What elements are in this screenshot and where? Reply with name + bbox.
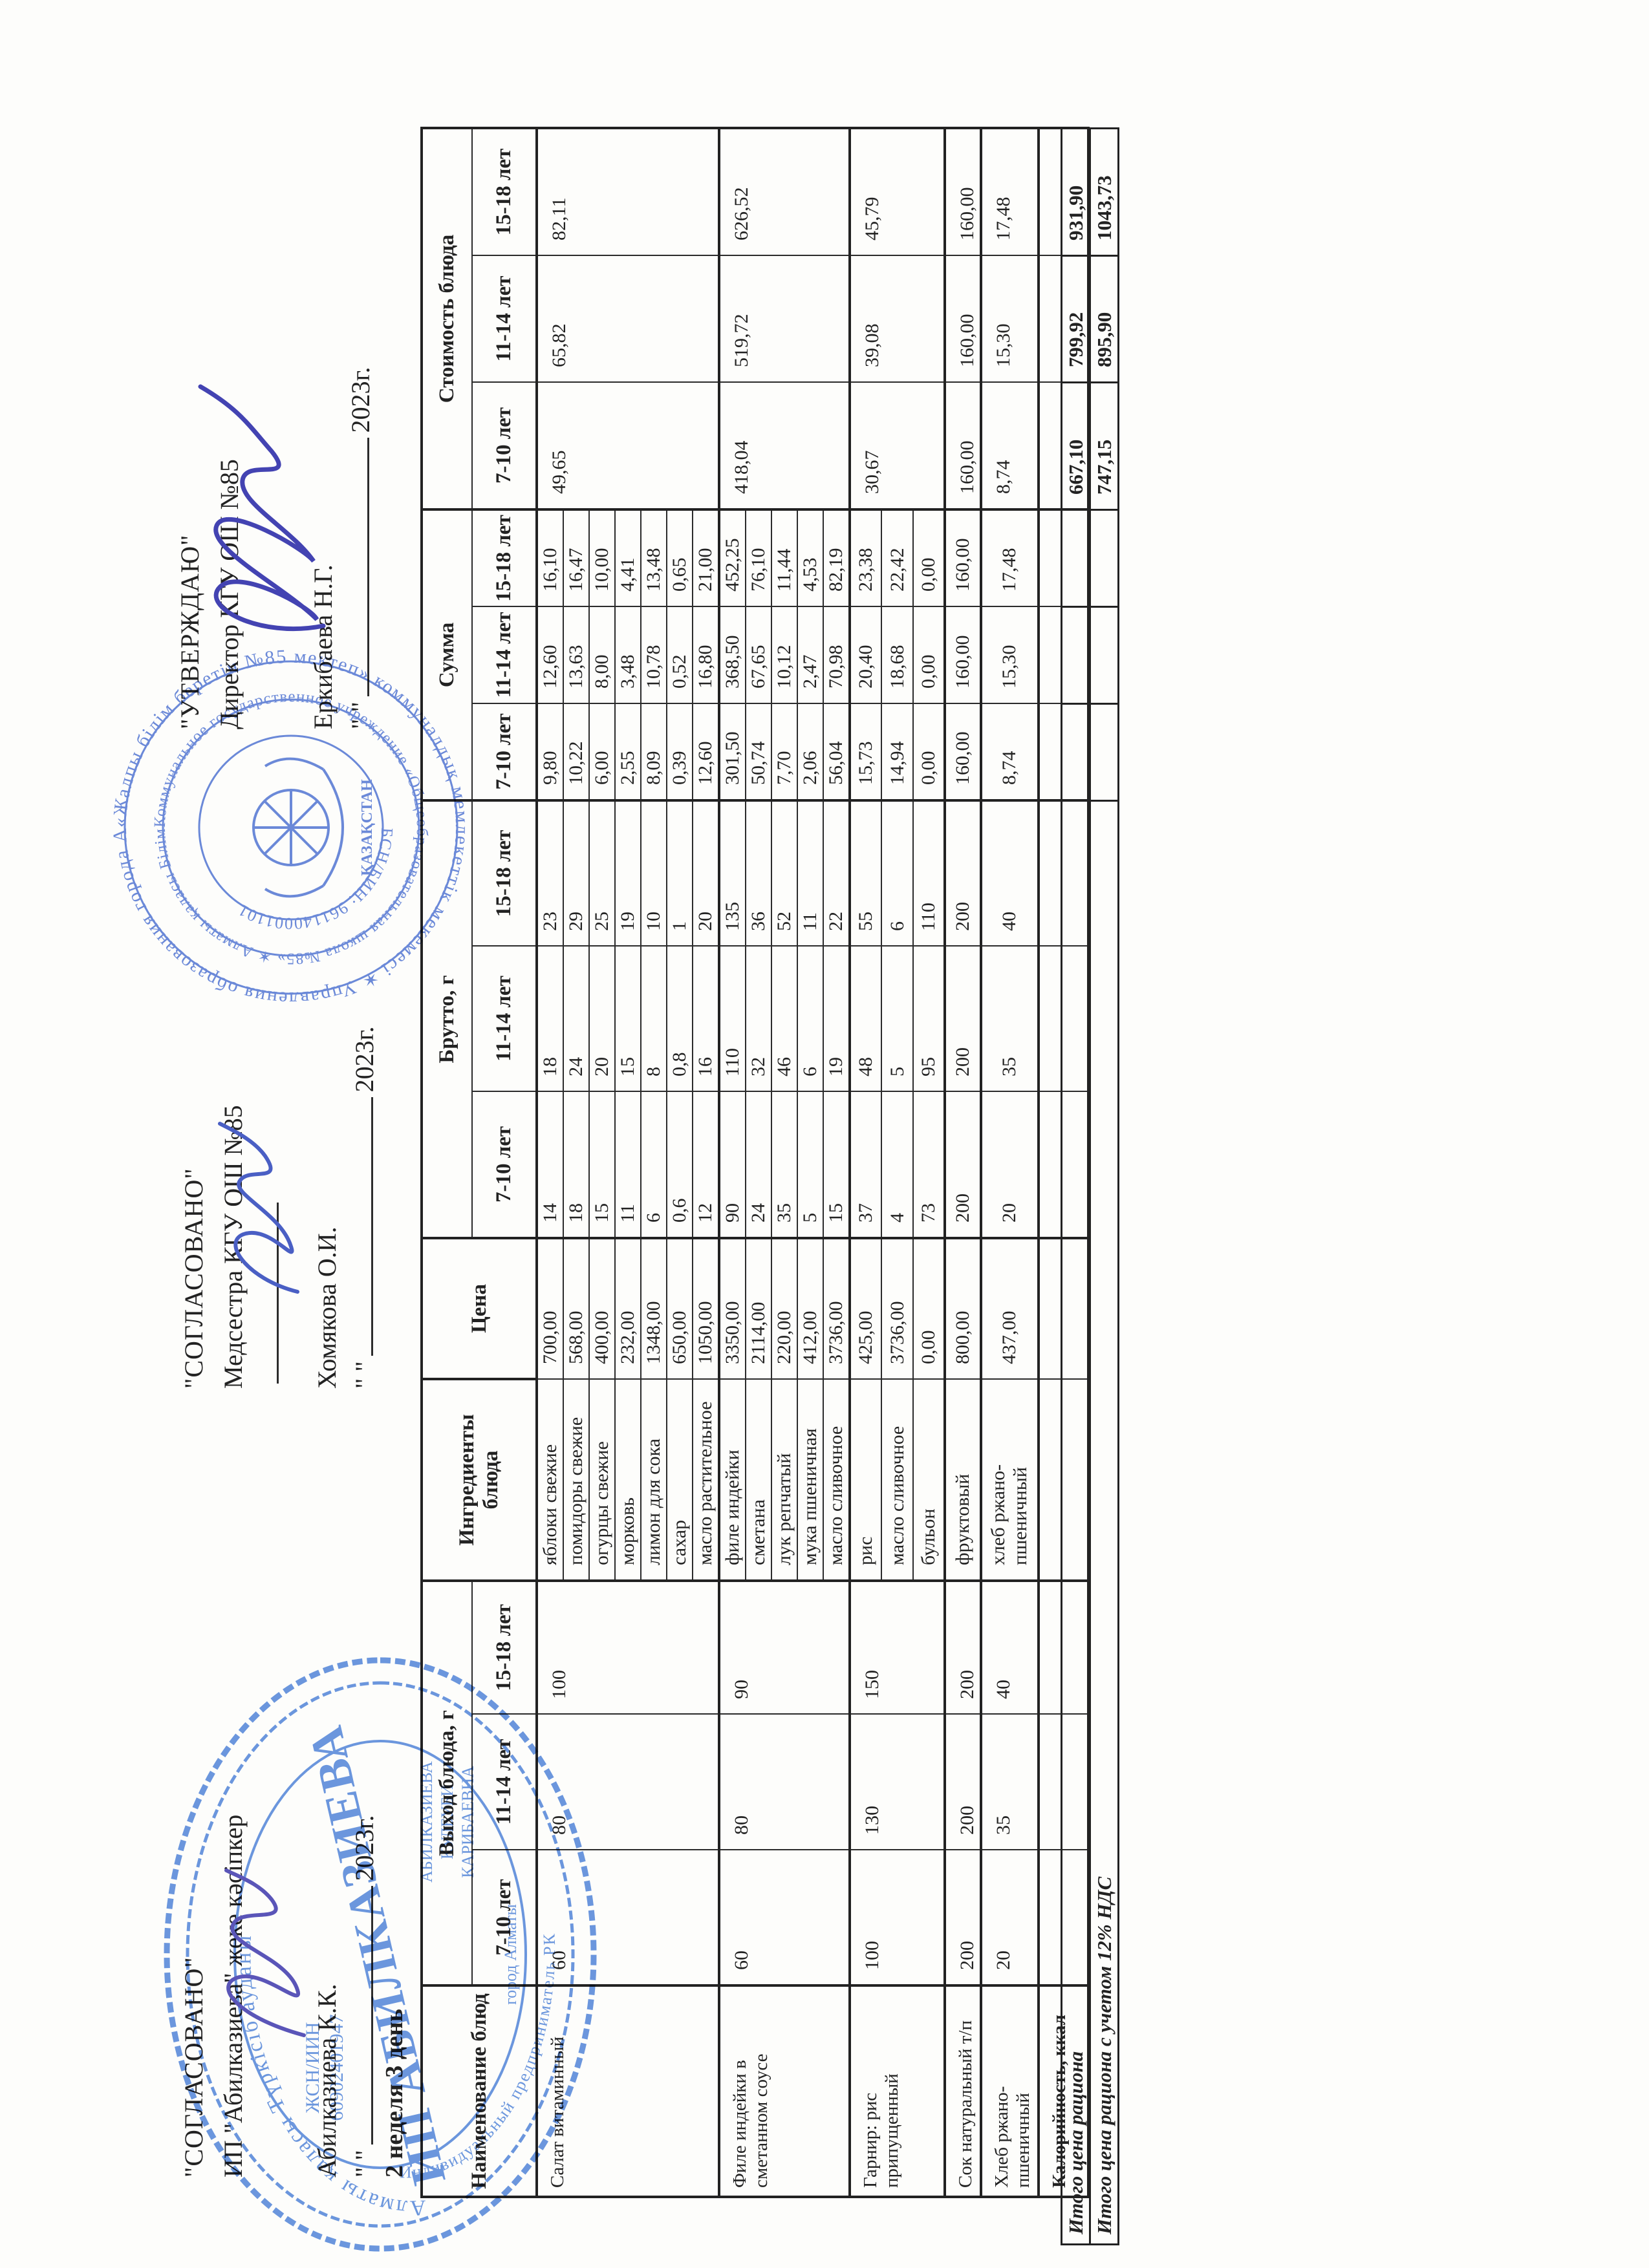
sum-cell: 4,41 xyxy=(615,509,641,606)
dish-name-cell: Сок натуральный т/п xyxy=(945,1985,981,2197)
brutto-cell: 110 xyxy=(913,800,945,946)
brutto-cell: 15 xyxy=(823,1091,850,1238)
price-cell: 2114,00 xyxy=(746,1238,771,1379)
brutto-cell: 36 xyxy=(746,800,771,946)
brutto-cell: 4 xyxy=(881,1091,913,1238)
total-value-cell: 1043,73 xyxy=(1090,129,1119,256)
med-date-line: " "2023г. xyxy=(350,1026,380,1389)
brutto-cell: 12 xyxy=(693,1091,719,1238)
date-underline xyxy=(351,1097,373,1356)
brutto-cell: 200 xyxy=(945,946,981,1091)
oval-fio1: АБИЛКАЗИЕВА xyxy=(417,1761,436,1883)
brutto-cell: 29 xyxy=(563,800,589,946)
yield-cell: 200 xyxy=(945,1714,981,1850)
sum-cell: 10,12 xyxy=(771,606,797,703)
sum-cell: 0,65 xyxy=(667,509,693,606)
sum-cell: 9,80 xyxy=(537,703,563,800)
brutto-cell: 37 xyxy=(850,1091,881,1238)
sum-cell: 2,47 xyxy=(797,606,823,703)
price-cell: 400,00 xyxy=(589,1238,615,1379)
brutto-cell: 5 xyxy=(797,1091,823,1238)
oval-fio3: КАРИБАЕВНА xyxy=(458,1766,477,1878)
price-cell: 3736,00 xyxy=(881,1238,913,1379)
oval-city: город Алматы xyxy=(501,1904,520,2005)
brutto-cell: 22 xyxy=(823,800,850,946)
total-label-cell: Итого цена рациона xyxy=(1062,801,1090,2245)
brutto-cell: 35 xyxy=(981,946,1039,1091)
brutto-cell: 19 xyxy=(615,800,641,946)
price-cell: 412,00 xyxy=(797,1238,823,1379)
age-col-label: 7-10 лет xyxy=(472,1091,537,1238)
yield-cell: 35 xyxy=(981,1714,1039,1850)
total-value-cell: 667,10 xyxy=(1062,383,1090,510)
date-quotes: " " xyxy=(350,1361,379,1389)
sum-cell: 8,00 xyxy=(589,606,615,703)
price-cell: 220,00 xyxy=(771,1238,797,1379)
brutto-cell: 25 xyxy=(589,800,615,946)
ingredient-cell: яблоки свежие xyxy=(537,1379,563,1581)
sum-cell: 160,00 xyxy=(945,509,981,606)
brutto-cell: 20 xyxy=(693,800,719,946)
sum-cell: 16,10 xyxy=(537,509,563,606)
price-cell: 650,00 xyxy=(667,1238,693,1379)
price-cell: 3736,00 xyxy=(823,1238,850,1379)
dish-name-cell: Хлеб ржано-пшеничный xyxy=(981,1985,1039,2197)
ingredient-cell: масло сливочное xyxy=(881,1379,913,1581)
sum-cell: 82,19 xyxy=(823,509,850,606)
brutto-cell: 110 xyxy=(719,946,746,1091)
total-empty-cell xyxy=(1062,510,1090,607)
age-col-label: 15-18 лет xyxy=(472,509,537,606)
brutto-cell: 18 xyxy=(563,1091,589,1238)
age-col-label: 11-14 лет xyxy=(472,255,537,382)
price-cell: 1050,00 xyxy=(693,1238,719,1379)
price-cell: 3350,00 xyxy=(719,1238,746,1379)
cost-cell: 65,82 xyxy=(537,255,719,382)
brutto-cell: 11 xyxy=(615,1091,641,1238)
sum-cell: 10,00 xyxy=(589,509,615,606)
ingredient-cell: масло растительное xyxy=(693,1379,719,1581)
sum-cell: 8,09 xyxy=(641,703,667,800)
nurse-signature xyxy=(194,1111,323,1318)
sum-cell: 56,04 xyxy=(823,703,850,800)
sum-cell: 0,00 xyxy=(913,606,945,703)
cost-cell: 418,04 xyxy=(719,382,850,509)
total-empty-cell xyxy=(1090,510,1119,607)
brutto-cell: 46 xyxy=(771,946,797,1091)
yield-cell: 80 xyxy=(719,1714,850,1850)
total-empty-cell xyxy=(1090,704,1119,801)
brutto-cell: 200 xyxy=(945,800,981,946)
price-cell: 800,00 xyxy=(945,1238,981,1379)
ingredient-cell: огурцы свежие xyxy=(589,1379,615,1581)
sum-cell: 16,80 xyxy=(693,606,719,703)
sum-cell: 2,55 xyxy=(615,703,641,800)
ingredient-cell: лимон для сока xyxy=(641,1379,667,1581)
sum-cell: 22,42 xyxy=(881,509,913,606)
ingredient-cell: рис xyxy=(850,1379,881,1581)
age-col-label: 11-14 лет xyxy=(472,946,537,1091)
sum-cell: 15,30 xyxy=(981,606,1039,703)
sum-cell: 18,68 xyxy=(881,606,913,703)
cost-cell: 82,11 xyxy=(537,128,719,255)
header-ingredients: Ингредиенты блюда xyxy=(422,1379,537,1581)
age-col-label: 15-18 лет xyxy=(472,128,537,255)
sum-cell: 15,73 xyxy=(850,703,881,800)
brutto-cell: 35 xyxy=(771,1091,797,1238)
yield-cell: 40 xyxy=(981,1581,1039,1714)
sum-cell: 10,78 xyxy=(641,606,667,703)
total-value-cell: 931,90 xyxy=(1062,129,1090,256)
total-value-cell: 895,90 xyxy=(1090,256,1119,383)
brutto-cell: 48 xyxy=(850,946,881,1091)
price-cell: 0,00 xyxy=(913,1238,945,1379)
brutto-cell: 23 xyxy=(537,800,563,946)
brutto-cell: 8 xyxy=(641,946,667,1091)
brutto-cell: 52 xyxy=(771,800,797,946)
kazakhstan-emblem xyxy=(253,759,343,897)
sum-cell: 14,94 xyxy=(881,703,913,800)
brutto-cell: 18 xyxy=(537,946,563,1091)
price-cell: 425,00 xyxy=(850,1238,881,1379)
scanned-document-page: "СОГЛАСОВАНО" ИП "Абилказиева" жеке кәсі… xyxy=(0,0,1649,2268)
yield-cell: 100 xyxy=(850,1850,945,1985)
sum-cell: 4,53 xyxy=(797,509,823,606)
ingredient-cell: мука пшеничная xyxy=(797,1379,823,1581)
ingredient-cell: лук репчатый xyxy=(771,1379,797,1581)
sum-cell: 160,00 xyxy=(945,703,981,800)
brutto-cell: 11 xyxy=(797,800,823,946)
brutto-cell: 90 xyxy=(719,1091,746,1238)
price-cell: 232,00 xyxy=(615,1238,641,1379)
dish-name-cell: Гарнир: рис припущенный xyxy=(850,1985,945,2197)
sum-cell: 50,74 xyxy=(746,703,771,800)
brutto-cell: 0,8 xyxy=(667,946,693,1091)
yield-cell: 60 xyxy=(719,1850,850,1985)
cost-cell: 45,79 xyxy=(850,128,945,255)
brutto-cell: 200 xyxy=(945,1091,981,1238)
sum-cell: 6,00 xyxy=(589,703,615,800)
brutto-cell: 10 xyxy=(641,800,667,946)
price-cell: 1348,00 xyxy=(641,1238,667,1379)
sum-cell: 13,48 xyxy=(641,509,667,606)
cost-cell: 160,00 xyxy=(945,128,981,255)
brutto-cell: 135 xyxy=(719,800,746,946)
age-col-label: 7-10 лет xyxy=(472,703,537,800)
brutto-cell: 0,6 xyxy=(667,1091,693,1238)
cost-cell: 39,08 xyxy=(850,255,945,382)
brutto-cell: 55 xyxy=(850,800,881,946)
brutto-cell: 20 xyxy=(589,946,615,1091)
total-empty-cell xyxy=(1090,607,1119,704)
sum-cell: 12,60 xyxy=(537,606,563,703)
yield-cell: 130 xyxy=(850,1714,945,1850)
landscape-sheet: "СОГЛАСОВАНО" ИП "Абилказиева" жеке кәсі… xyxy=(0,0,1649,2268)
director-signature xyxy=(162,367,356,665)
brutto-cell: 32 xyxy=(746,946,771,1091)
brutto-cell: 95 xyxy=(913,946,945,1091)
oval-idn2: 60902401947 xyxy=(326,2015,347,2121)
sum-cell: 0,52 xyxy=(667,606,693,703)
sum-cell: 301,50 xyxy=(719,703,746,800)
brutto-cell: 40 xyxy=(981,800,1039,946)
oval-fio2: КУЛБУБИ xyxy=(438,1784,457,1859)
emblem-banner-text: ҚАЗАҚСТАН xyxy=(359,779,376,876)
brutto-cell: 15 xyxy=(589,1091,615,1238)
round-school-stamp: «Жалпы білім беретін №85 мектеп» коммуна… xyxy=(103,640,479,1015)
brutto-cell: 15 xyxy=(615,946,641,1091)
sum-cell: 21,00 xyxy=(693,509,719,606)
total-label-cell: Итого цена рациона с учетом 12% НДС xyxy=(1090,801,1119,2245)
price-cell: 568,00 xyxy=(563,1238,589,1379)
header-cost: Стоимость блюда xyxy=(422,128,472,509)
age-col-label: 15-18 лет xyxy=(472,800,537,946)
brutto-cell: 19 xyxy=(823,946,850,1091)
age-col-label: 7-10 лет xyxy=(472,382,537,509)
yield-cell: 150 xyxy=(850,1581,945,1714)
date-year: 2023г. xyxy=(350,1026,379,1092)
sum-cell: 16,47 xyxy=(563,509,589,606)
cost-cell: 160,00 xyxy=(945,255,981,382)
sum-cell: 17,48 xyxy=(981,509,1039,606)
brutto-cell: 16 xyxy=(693,946,719,1091)
sum-cell: 10,22 xyxy=(563,703,589,800)
sum-cell: 67,65 xyxy=(746,606,771,703)
sum-cell: 0,00 xyxy=(913,509,945,606)
sum-cell: 70,98 xyxy=(823,606,850,703)
sum-cell: 7,70 xyxy=(771,703,797,800)
dish-name-cell: Филе индейки в сметанном соусе xyxy=(719,1985,850,2197)
ingredient-cell: фруктовый xyxy=(945,1379,981,1581)
sum-cell: 368,50 xyxy=(719,606,746,703)
sum-cell: 11,44 xyxy=(771,509,797,606)
brutto-cell: 5 xyxy=(881,946,913,1091)
ingredient-cell: морковь xyxy=(615,1379,641,1581)
yield-cell: 20 xyxy=(981,1850,1039,1985)
brutto-cell: 20 xyxy=(981,1091,1039,1238)
sum-cell: 23,38 xyxy=(850,509,881,606)
brutto-cell: 24 xyxy=(746,1091,771,1238)
header-price: Цена xyxy=(422,1238,537,1379)
brutto-cell: 24 xyxy=(563,946,589,1091)
ingredient-cell: сметана xyxy=(746,1379,771,1581)
sum-cell: 8,74 xyxy=(981,703,1039,800)
sum-cell: 0,39 xyxy=(667,703,693,800)
ingredient-cell: помидоры свежие xyxy=(563,1379,589,1581)
sum-cell: 76,10 xyxy=(746,509,771,606)
total-empty-cell xyxy=(1062,704,1090,801)
cost-cell: 30,67 xyxy=(850,382,945,509)
total-value-cell: 747,15 xyxy=(1090,383,1119,510)
total-empty-cell xyxy=(1062,607,1090,704)
brutto-cell: 1 xyxy=(667,800,693,946)
cost-cell: 15,30 xyxy=(981,255,1039,382)
ingredient-cell: сахар xyxy=(667,1379,693,1581)
ingredient-cell: филе индейки xyxy=(719,1379,746,1581)
brutto-cell: 6 xyxy=(797,946,823,1091)
sum-cell: 13,63 xyxy=(563,606,589,703)
ip-signature xyxy=(194,1861,323,2055)
ingredient-cell: масло сливочное xyxy=(823,1379,850,1581)
yield-cell: 200 xyxy=(945,1581,981,1714)
cost-cell: 626,52 xyxy=(719,128,850,255)
totals-table: Итого цена рациона667,10799,92931,90Итог… xyxy=(1061,127,1119,2245)
cost-cell: 519,72 xyxy=(719,255,850,382)
brutto-cell: 14 xyxy=(537,1091,563,1238)
ingredient-cell: бульон xyxy=(913,1379,945,1581)
price-cell: 437,00 xyxy=(981,1238,1039,1379)
sum-cell: 0,00 xyxy=(913,703,945,800)
total-value-cell: 799,92 xyxy=(1062,256,1090,383)
cost-cell: 8,74 xyxy=(981,382,1039,509)
brutto-cell: 73 xyxy=(913,1091,945,1238)
sum-cell: 2,06 xyxy=(797,703,823,800)
sum-cell: 452,25 xyxy=(719,509,746,606)
cost-cell: 49,65 xyxy=(537,382,719,509)
brutto-cell: 6 xyxy=(881,800,913,946)
yield-cell: 200 xyxy=(945,1850,981,1985)
brutto-cell: 6 xyxy=(641,1091,667,1238)
cost-cell: 17,48 xyxy=(981,128,1039,255)
sum-cell: 160,00 xyxy=(945,606,981,703)
age-col-label: 11-14 лет xyxy=(472,606,537,703)
sum-cell: 3,48 xyxy=(615,606,641,703)
cost-cell: 160,00 xyxy=(945,382,981,509)
sum-cell: 12,60 xyxy=(693,703,719,800)
sum-cell: 20,40 xyxy=(850,606,881,703)
ingredient-cell: хлеб ржано-пшеничный xyxy=(981,1379,1039,1581)
price-cell: 700,00 xyxy=(537,1238,563,1379)
yield-cell: 90 xyxy=(719,1581,850,1714)
